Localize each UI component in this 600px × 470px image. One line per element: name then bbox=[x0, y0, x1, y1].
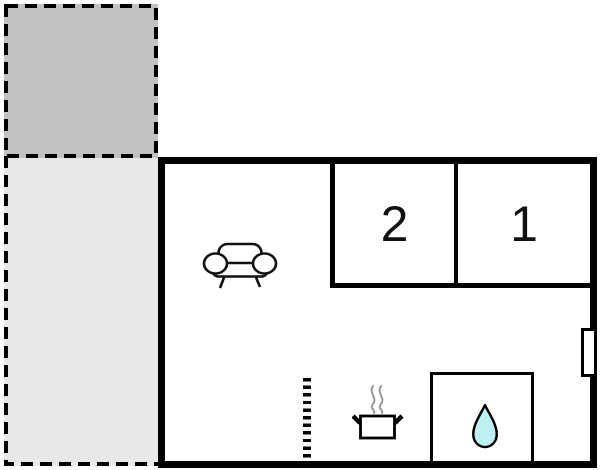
water-drop-shape bbox=[473, 405, 497, 447]
floor-plan: 2 1 bbox=[0, 0, 600, 470]
pot-body bbox=[361, 416, 395, 438]
terrace-upper bbox=[4, 4, 158, 158]
water-drop-icon bbox=[470, 403, 500, 450]
window-marker bbox=[581, 328, 597, 377]
sofa-icon bbox=[202, 242, 278, 290]
bedroom-wall-left bbox=[330, 164, 335, 287]
steam-icon bbox=[380, 386, 383, 413]
terrace-lower bbox=[4, 158, 158, 466]
room-bedroom-1: 1 bbox=[458, 164, 590, 283]
sofa-armrest-left bbox=[204, 254, 227, 274]
main-room: 2 1 bbox=[158, 157, 597, 468]
bedroom-wall-bottom bbox=[330, 283, 590, 288]
pot-handle-right bbox=[395, 416, 402, 423]
room-2-label: 2 bbox=[381, 199, 409, 249]
sofa-armrest-right bbox=[253, 254, 276, 274]
room-1-label: 1 bbox=[510, 199, 538, 249]
steam-icon bbox=[372, 386, 375, 413]
room-bedroom-2: 2 bbox=[335, 164, 454, 283]
pot-handle-left bbox=[353, 416, 360, 423]
cooking-pot-icon bbox=[352, 383, 408, 443]
partial-wall-dashed bbox=[303, 378, 311, 461]
